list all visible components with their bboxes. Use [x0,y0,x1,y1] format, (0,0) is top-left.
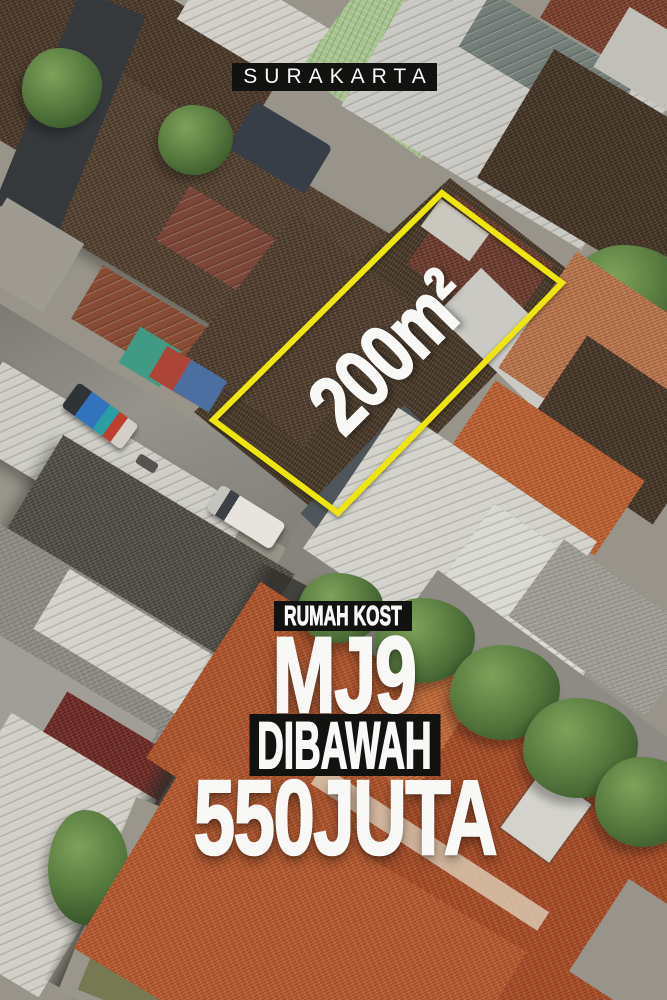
price-text: 550JUTA [193,765,495,871]
city-badge-text: SURAKARTA [243,65,432,89]
price-wrap: 550JUTA [0,770,667,865]
real-estate-poster: 200m² SURAKARTA RUMAH KOST MJ9 DIBAWAH 5… [0,0,667,1000]
city-badge: SURAKARTA [232,63,437,91]
